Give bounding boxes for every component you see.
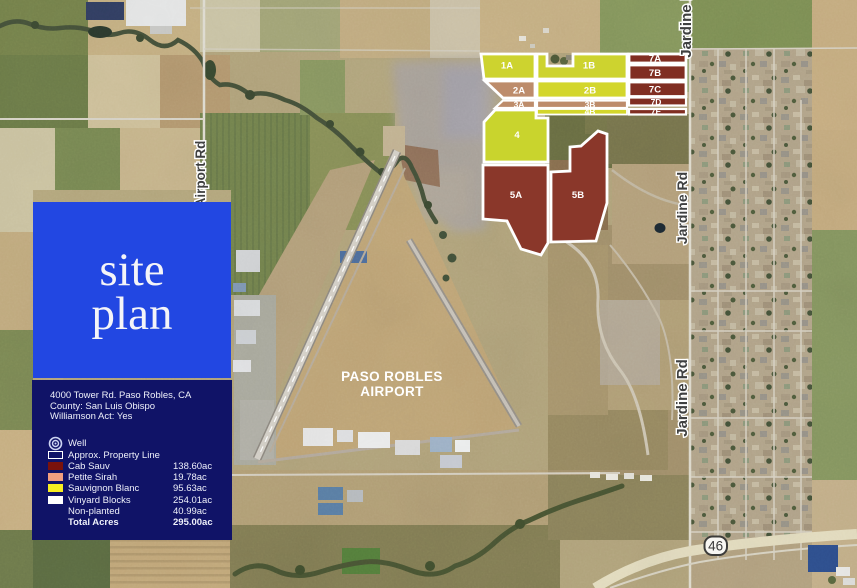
- svg-text:Airport Rd: Airport Rd: [193, 141, 208, 208]
- svg-text:PASO ROBLES: PASO ROBLES: [341, 369, 443, 384]
- svg-text:AIRPORT: AIRPORT: [360, 384, 424, 399]
- svg-text:2B: 2B: [584, 86, 596, 97]
- svg-text:7C: 7C: [649, 85, 661, 96]
- svg-text:5A: 5A: [510, 190, 522, 201]
- svg-text:5B: 5B: [572, 190, 584, 201]
- svg-text:2A: 2A: [513, 86, 525, 97]
- svg-text:7E: 7E: [651, 107, 662, 117]
- svg-text:4B: 4B: [585, 107, 596, 117]
- svg-text:1B: 1B: [583, 61, 595, 72]
- svg-text:3A: 3A: [514, 100, 525, 110]
- svg-text:Jardine Rd: Jardine Rd: [678, 0, 695, 58]
- svg-text:4: 4: [514, 130, 520, 141]
- svg-text:7B: 7B: [649, 68, 661, 79]
- svg-text:Jardine Rd: Jardine Rd: [674, 359, 691, 437]
- svg-text:Jardine Rd: Jardine Rd: [674, 172, 690, 244]
- svg-text:7A: 7A: [649, 54, 661, 65]
- svg-text:46: 46: [708, 539, 723, 554]
- svg-text:7D: 7D: [651, 97, 662, 107]
- svg-text:1A: 1A: [501, 61, 513, 72]
